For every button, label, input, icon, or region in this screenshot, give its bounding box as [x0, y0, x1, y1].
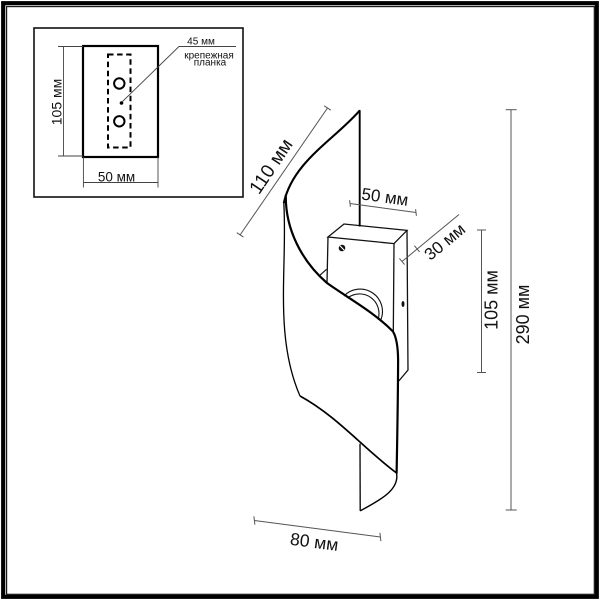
svg-text:50 мм: 50 мм [98, 170, 135, 185]
svg-text:45 мм: 45 мм [187, 37, 215, 48]
svg-text:80 мм: 80 мм [289, 529, 340, 555]
svg-text:планка: планка [194, 58, 227, 69]
svg-text:290 мм: 290 мм [513, 285, 533, 345]
svg-text:105 мм: 105 мм [49, 79, 65, 126]
svg-text:105 мм: 105 мм [482, 270, 502, 330]
